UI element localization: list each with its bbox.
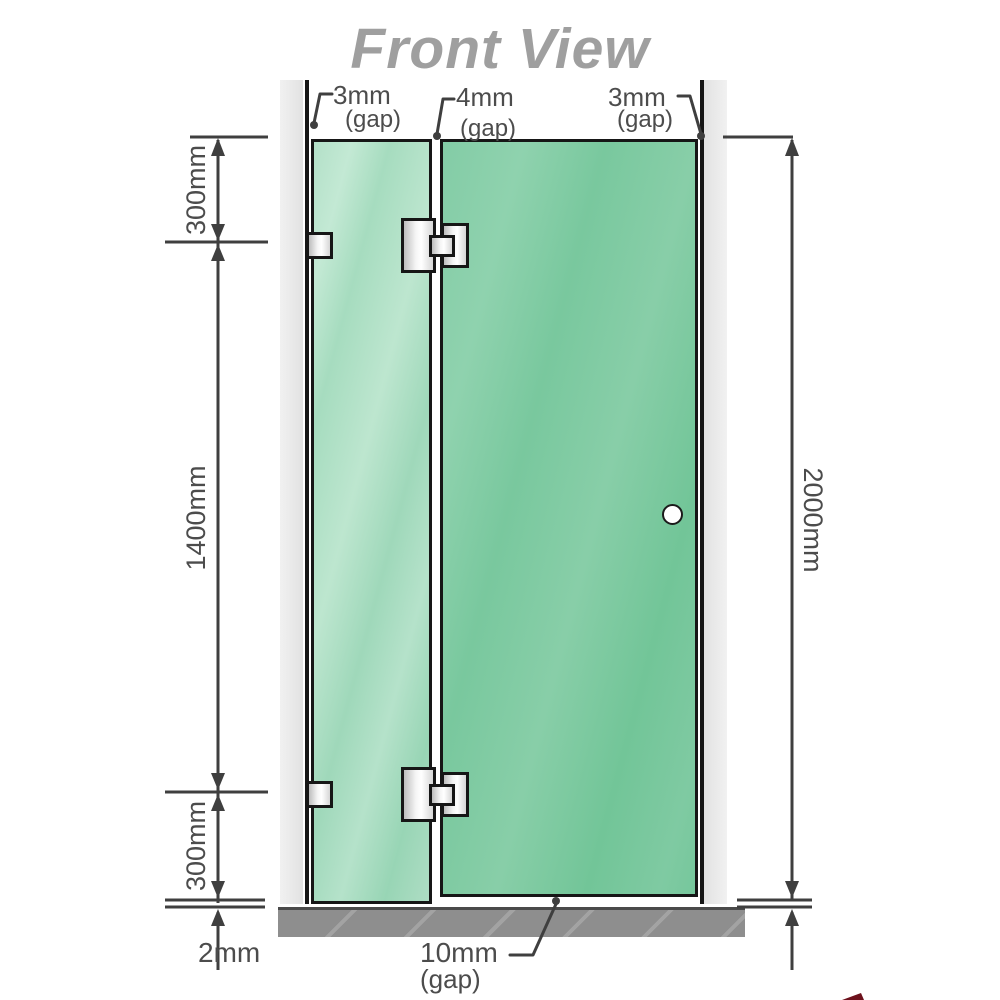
arrow-up-icon	[211, 794, 225, 811]
shower-screen-front-view-diagram: Front View	[0, 0, 1000, 1000]
dim-label-height-middle: 1400mm	[181, 408, 211, 628]
dim-label-total-height: 2000mm	[798, 410, 828, 630]
arrow-up-icon	[211, 244, 225, 261]
gap-label-bottom-value: 10mm	[420, 938, 498, 967]
gap-label-top-middle-qualifier: (gap)	[460, 116, 516, 141]
arrow-up-icon	[785, 909, 799, 926]
door-knob	[662, 504, 683, 525]
glass-panel-door	[440, 139, 698, 897]
gap-label-top-left-qualifier: (gap)	[345, 107, 401, 132]
gap-label-bottom-qualifier: (gap)	[420, 966, 481, 993]
arrow-down-icon	[211, 773, 225, 790]
leader-dot-icon	[310, 121, 318, 129]
leader-gap-top-middle	[437, 99, 454, 134]
wall-profile-left	[280, 80, 303, 904]
dim-label-height-bottom: 300mm	[181, 736, 211, 956]
leader-dot-icon	[552, 897, 560, 905]
gap-label-top-middle-value: 4mm	[456, 84, 514, 111]
corner-mark	[842, 993, 864, 1000]
dim-label-floor-clearance: 2mm	[198, 938, 260, 967]
leader-gap-top-left	[314, 94, 332, 123]
gap-label-top-right-qualifier: (gap)	[617, 107, 673, 132]
floor	[278, 907, 745, 937]
arrow-down-icon	[211, 881, 225, 898]
hinge-bottom-knuckle	[429, 784, 455, 806]
arrow-down-icon	[785, 881, 799, 898]
wall-bracket-top	[306, 232, 333, 259]
hinge-top-knuckle	[429, 235, 455, 257]
arrow-up-icon	[211, 909, 225, 926]
wall-profile-right	[704, 80, 727, 904]
arrow-down-icon	[211, 224, 225, 241]
diagram-title: Front View	[0, 16, 1000, 82]
arrow-up-icon	[785, 138, 799, 156]
dim-label-height-top: 300mm	[181, 80, 211, 300]
leader-gap-top-right	[678, 96, 701, 134]
wall-bracket-bottom	[306, 781, 333, 808]
arrow-up-icon	[211, 138, 225, 156]
